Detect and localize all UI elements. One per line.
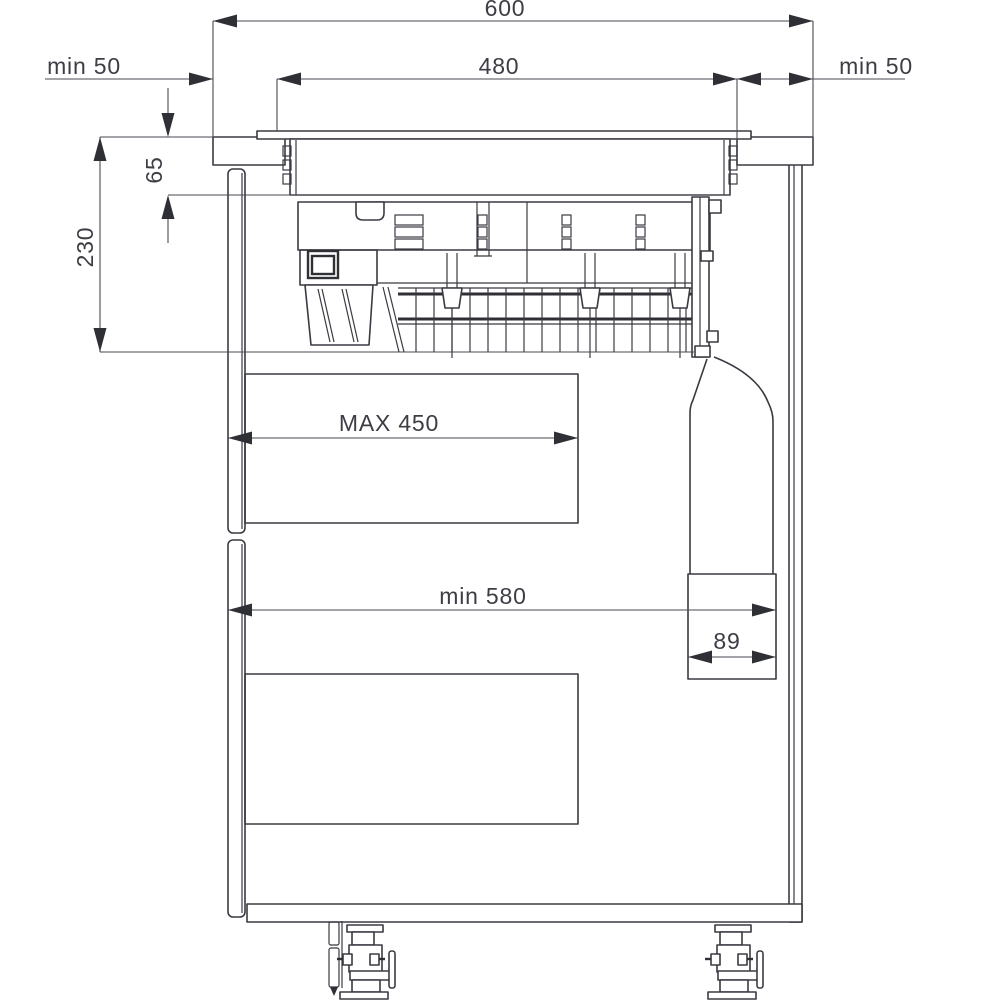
- drawer-lower: [245, 674, 578, 824]
- cabinet-left-wall: [228, 169, 245, 917]
- duct-box: [688, 574, 776, 679]
- dim-label-hob-depth: 65: [141, 156, 167, 183]
- dim-label-drawer-max: MAX 450: [339, 410, 439, 436]
- dim-label-duct-width: 89: [713, 628, 740, 654]
- dim-label-cutout-width: 480: [479, 53, 520, 79]
- right-foot: [705, 925, 763, 999]
- dim-label-clearance-left: min 50: [47, 53, 121, 79]
- dim-label-total-width: 600: [485, 0, 526, 21]
- dim-label-cabinet-min-width: min 580: [439, 583, 526, 609]
- support-rods: [442, 253, 690, 358]
- extractor-unit: [298, 197, 721, 358]
- filter-tray: [383, 287, 692, 352]
- outlet-column: [692, 197, 721, 357]
- cabinet-bottom-panel: [247, 904, 802, 922]
- dimension-480: 480: [277, 53, 737, 140]
- motor-box: [305, 251, 373, 345]
- dim-label-clearance-right: min 50: [839, 53, 913, 79]
- dimension-min50-right: min 50: [737, 53, 913, 86]
- dim-label-unit-depth: 230: [72, 227, 98, 268]
- diagram-canvas: 600 480 min 50 min 50 65 230: [0, 0, 1000, 1000]
- hob-unit: [257, 131, 751, 195]
- drawer-upper: [245, 374, 578, 523]
- dimension-max450: MAX 450: [228, 410, 578, 445]
- cabinet-right-wall: [789, 165, 802, 922]
- dimension-min50-left: min 50: [45, 53, 213, 86]
- left-foot: [329, 921, 395, 999]
- installation-diagram: 600 480 min 50 min 50 65 230: [0, 0, 1000, 1000]
